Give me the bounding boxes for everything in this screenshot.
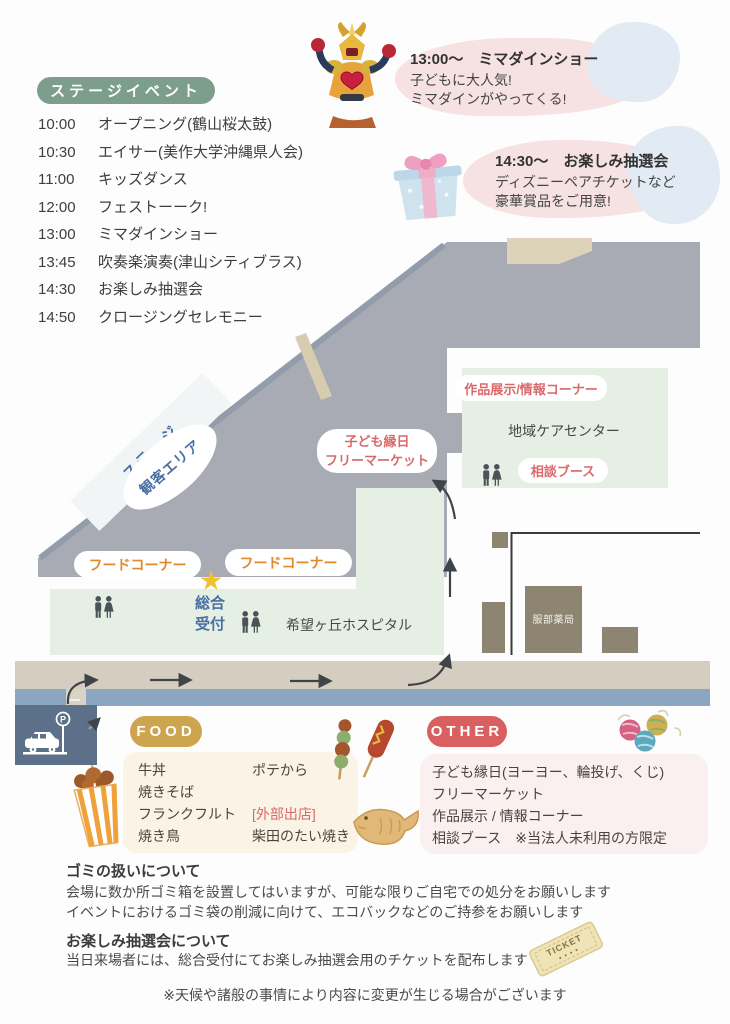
corridor-zone [356,488,444,590]
reception-label: 総合受付 [193,593,227,635]
schedule-row: 13:00ミマダインショー [38,221,303,249]
food-item: ポテから [252,759,308,781]
lottery-announcement-title: 14:30〜 お楽しみ抽選会 [495,150,668,171]
kids-fair-line: 子ども縁日 [344,432,409,451]
pharmacy-label: 服部薬局 [533,613,575,626]
care-center-label: 地域ケアセンター [496,421,632,441]
schedule-time: 11:00 [38,166,84,194]
yoyo-balloons-illustration [612,708,684,766]
schedule-row: 10:30エイサー(美作大学沖縄県人会) [38,139,303,167]
food-item: 焼きそば [138,781,236,803]
schedule-title: 吹奏楽演奏(津山シティブラス) [98,249,302,277]
karaage-cup-illustration [68,763,130,851]
kids-fair-line: フリーマーケット [325,451,429,470]
other-item: 相談ブース ※当法人未利用の方限定 [432,827,667,849]
schedule-row: 11:00キッズダンス [38,166,303,194]
schedule-time: 13:45 [38,249,84,277]
schedule-row: 14:30お楽しみ抽選会 [38,276,303,304]
other-list: 子ども縁日(ヨーヨー、輪投げ、くじ) フリーマーケット 作品展示 / 情報コーナ… [432,761,667,849]
ticket-illustration: TICKET [520,918,612,980]
schedule-title: オープニング(鶴山桜太鼓) [98,111,272,139]
external-vendor-tag: [外部出店] [252,803,316,825]
schedule-row: 12:00フェストーーク! [38,194,303,222]
kids-fair-label: 子ども縁日 フリーマーケット [317,429,437,473]
disclaimer: ※天候や諸般の事情により内容に変更が生じる場合がございます [0,985,730,1005]
consult-booth-pill: 相談ブース [518,458,608,483]
food-item: フランクフルト [138,803,236,825]
trash-note-title: ゴミの扱いについて [66,860,201,881]
watercolor-blob-blue [588,22,680,102]
trash-note-line: 会場に数か所ゴミ箱を設置してはいますが、可能な限りご自宅での処分をお願いします [66,882,611,902]
hero-character-illustration [303,20,403,130]
food-item: 柴田のたい焼き [252,825,350,847]
schedule-row: 14:50クロージングセレモニー [38,304,303,332]
other-item: 作品展示 / 情報コーナー [432,805,667,827]
schedule-time: 10:00 [38,111,84,139]
schedule-time: 10:30 [38,139,84,167]
gift-box-illustration [390,144,472,226]
schedule-title: ミマダインショー [98,221,218,249]
food-corner-pill-right: フードコーナー [225,549,352,576]
trash-note-line: イベントにおけるゴミ袋の削減に向けて、エコバックなどのご持参をお願いします [66,902,583,922]
schedule-time: 13:00 [38,221,84,249]
schedule-title: クロージングセレモニー [98,304,263,332]
food-corner-pill-left: フードコーナー [74,551,201,578]
parking-sign: P [15,705,97,765]
lottery-note-title: お楽しみ抽選会について [66,930,231,951]
exhibit-info-pill: 作品展示/情報コーナー [455,375,607,401]
food-item: 牛丼 [138,759,236,781]
other-item: フリーマーケット [432,783,667,805]
other-badge: OTHER [427,716,507,747]
road-tan [15,661,710,689]
skewer-corndog-illustration [326,714,400,794]
schedule-time: 14:50 [38,304,84,332]
schedule-row: 10:00オープニング(鶴山桜太鼓) [38,111,303,139]
buildings: 服部薬局 [482,532,700,655]
lottery-announcement-line: ディズニーペアチケットなど [495,172,676,192]
schedule-list: 10:00オープニング(鶴山桜太鼓) 10:30エイサー(美作大学沖縄県人会) … [38,111,303,331]
schedule-time: 12:00 [38,194,84,222]
schedule-row: 13:45吹奏楽演奏(津山シティブラス) [38,249,303,277]
schedule-title: フェストーーク! [98,194,207,222]
food-badge: FOOD [130,716,202,747]
p-letter: P [60,715,66,725]
schedule-title: キッズダンス [98,166,188,194]
food-item: 焼き鳥 [138,825,236,847]
show-announcement-line: 子どもに大人気! [410,70,512,90]
taiyaki-illustration [346,794,420,856]
show-announcement-title: 13:00〜 ミマダインショー [410,48,598,69]
food-list-col1: 牛丼 焼きそば フランクフルト 焼き鳥 [138,759,236,847]
stage-events-badge: ステージイベント [37,77,215,104]
schedule-title: お楽しみ抽選会 [98,276,203,304]
schedule-time: 14:30 [38,276,84,304]
lottery-announcement-line: 豪華賞品をご用意! [495,191,611,211]
schedule-title: エイサー(美作大学沖縄県人会) [98,139,303,167]
event-flyer: ステージ 観客エリア 服部薬局 [0,0,730,1024]
road-blue [15,689,710,706]
hospital-label: 希望ヶ丘ホスピタル [286,615,412,635]
show-announcement-line: ミマダインがやってくる! [410,89,567,109]
lottery-note-line: 当日来場者には、総合受付にてお楽しみ抽選会用のチケットを配布します [66,950,528,970]
